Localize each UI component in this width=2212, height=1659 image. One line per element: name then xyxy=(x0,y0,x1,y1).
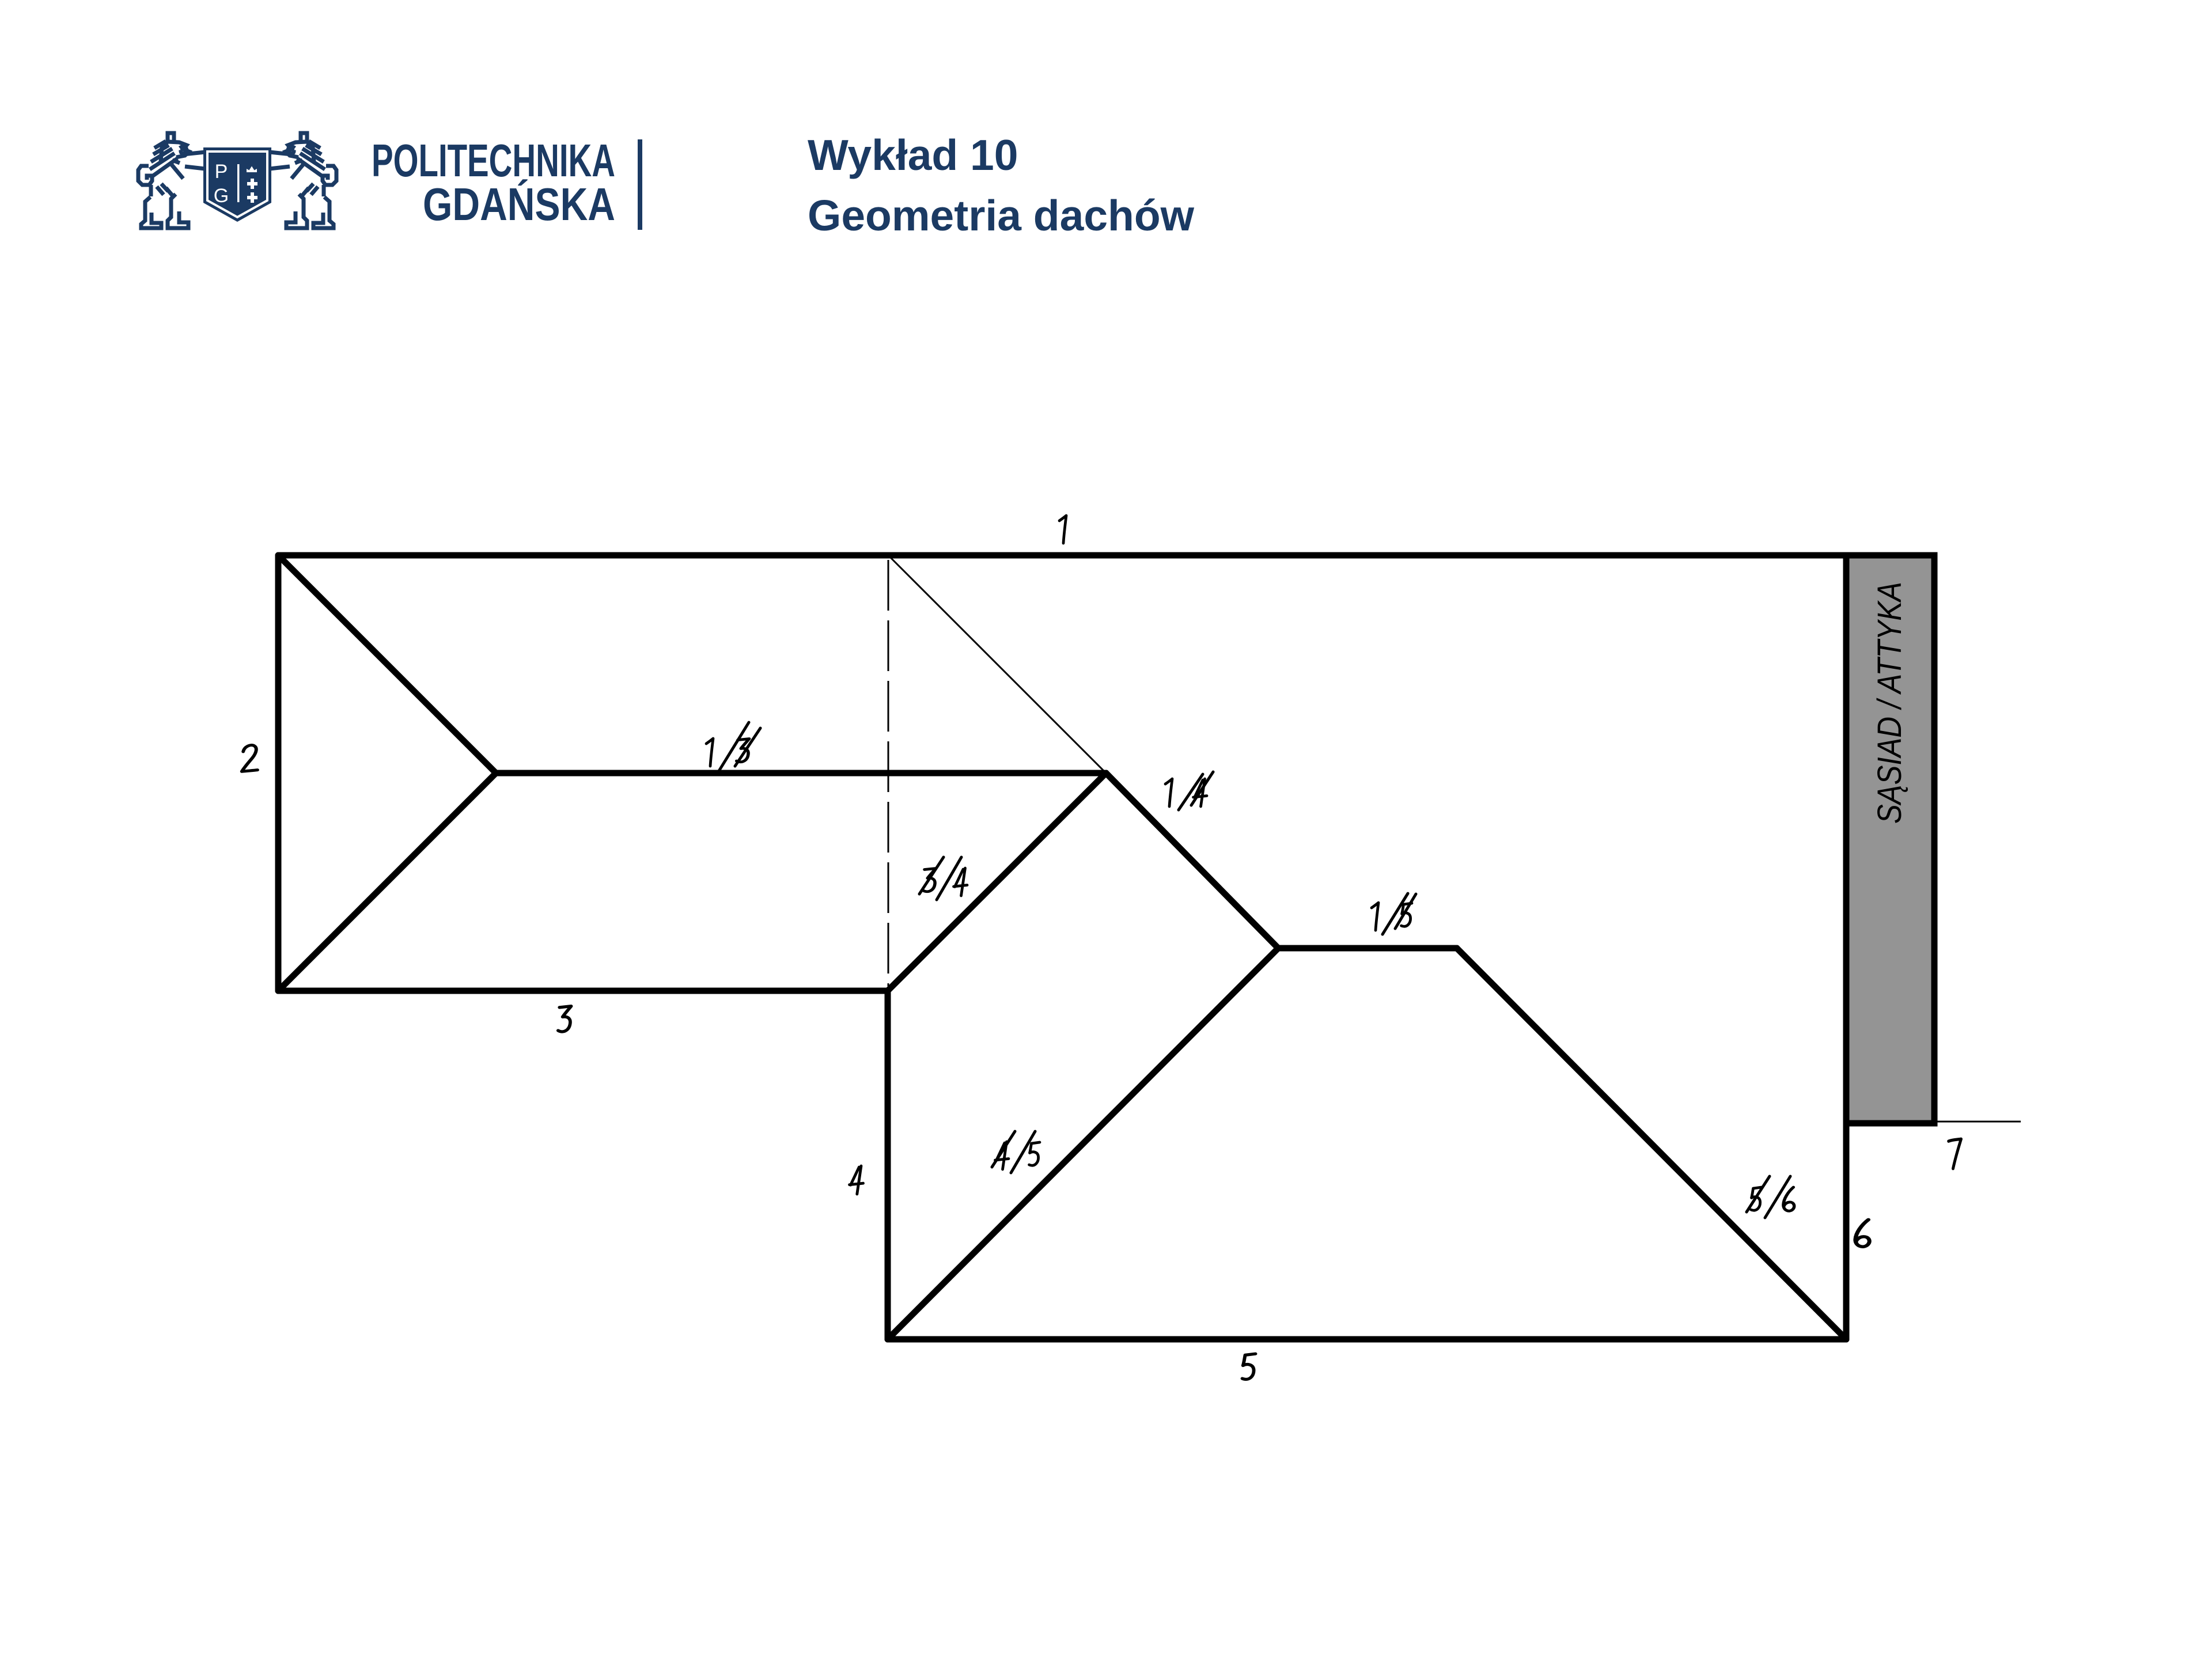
svg-text:Wykład 10: Wykład 10 xyxy=(808,131,1018,179)
svg-text:SĄSIAD / ATTYKA: SĄSIAD / ATTYKA xyxy=(1871,582,1908,824)
svg-text:G: G xyxy=(214,185,229,207)
svg-text:GDAŃSKA: GDAŃSKA xyxy=(423,179,615,230)
svg-text:P: P xyxy=(215,161,228,183)
svg-text:Geometria dachów: Geometria dachów xyxy=(808,191,1195,240)
